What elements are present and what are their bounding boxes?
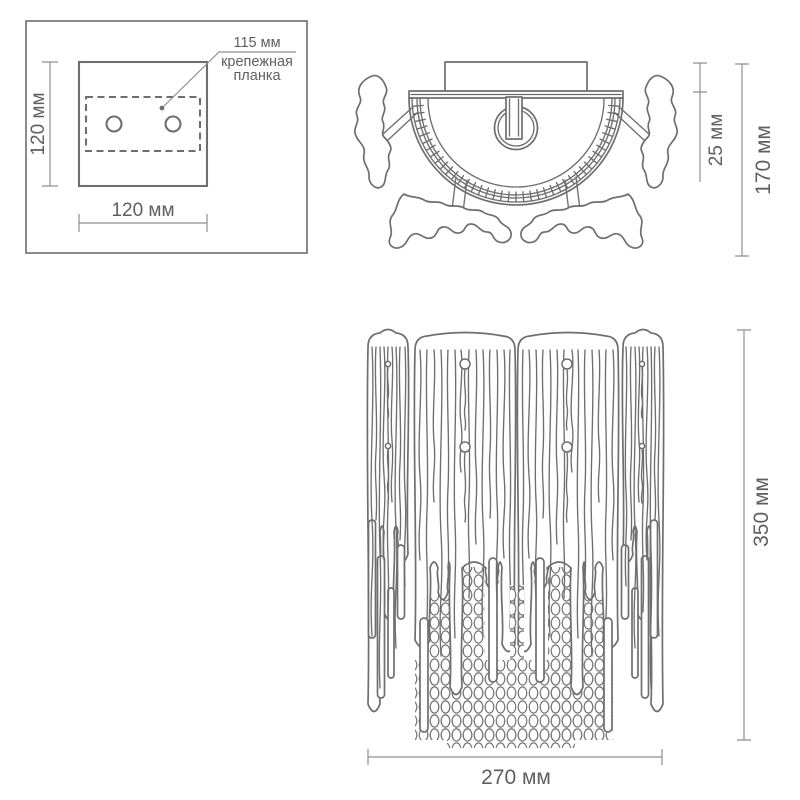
canopy-box bbox=[445, 62, 587, 92]
front-view: 350 мм 270 мм bbox=[367, 330, 773, 790]
wall-sconce-technical-drawing: 115 мм крепежная планка 120 мм 120 мм bbox=[0, 0, 800, 800]
center-bead-chain bbox=[510, 585, 524, 667]
fixture-height-dimension: 350 мм bbox=[737, 330, 773, 740]
plate-height-dimension: 120 мм bbox=[28, 62, 58, 186]
leader-dot bbox=[160, 106, 165, 111]
hole-spacing-label: 115 мм bbox=[233, 35, 280, 51]
mounting-bracket-dashed-rect bbox=[86, 97, 200, 151]
mounting-hole-left bbox=[107, 117, 122, 132]
canopy-depth-label: 25 мм bbox=[706, 114, 727, 167]
plate-width-dimension: 120 мм bbox=[79, 200, 207, 232]
socket-stem bbox=[506, 97, 522, 139]
canopy-depth-dimension: 25 мм bbox=[693, 63, 727, 182]
mounting-plate-view: 115 мм крепежная планка 120 мм 120 мм bbox=[26, 21, 307, 253]
fixture-height-label: 350 мм bbox=[750, 477, 773, 547]
mounting-hole-right bbox=[166, 117, 181, 132]
bracket-label-line2: планка bbox=[233, 68, 281, 84]
drawing-canvas: 115 мм крепежная планка 120 мм 120 мм bbox=[0, 0, 800, 800]
plate-height-label: 120 мм bbox=[28, 92, 49, 155]
mounting-plate-square bbox=[79, 62, 207, 186]
top-view: 25 мм 170 мм bbox=[355, 62, 775, 256]
fixture-width-label: 270 мм bbox=[481, 766, 551, 789]
plate-width-label: 120 мм bbox=[111, 200, 174, 221]
fixture-depth-label: 170 мм bbox=[752, 125, 775, 195]
fixture-depth-dimension: 170 мм bbox=[735, 64, 775, 256]
fixture-width-dimension: 270 мм bbox=[368, 749, 662, 789]
